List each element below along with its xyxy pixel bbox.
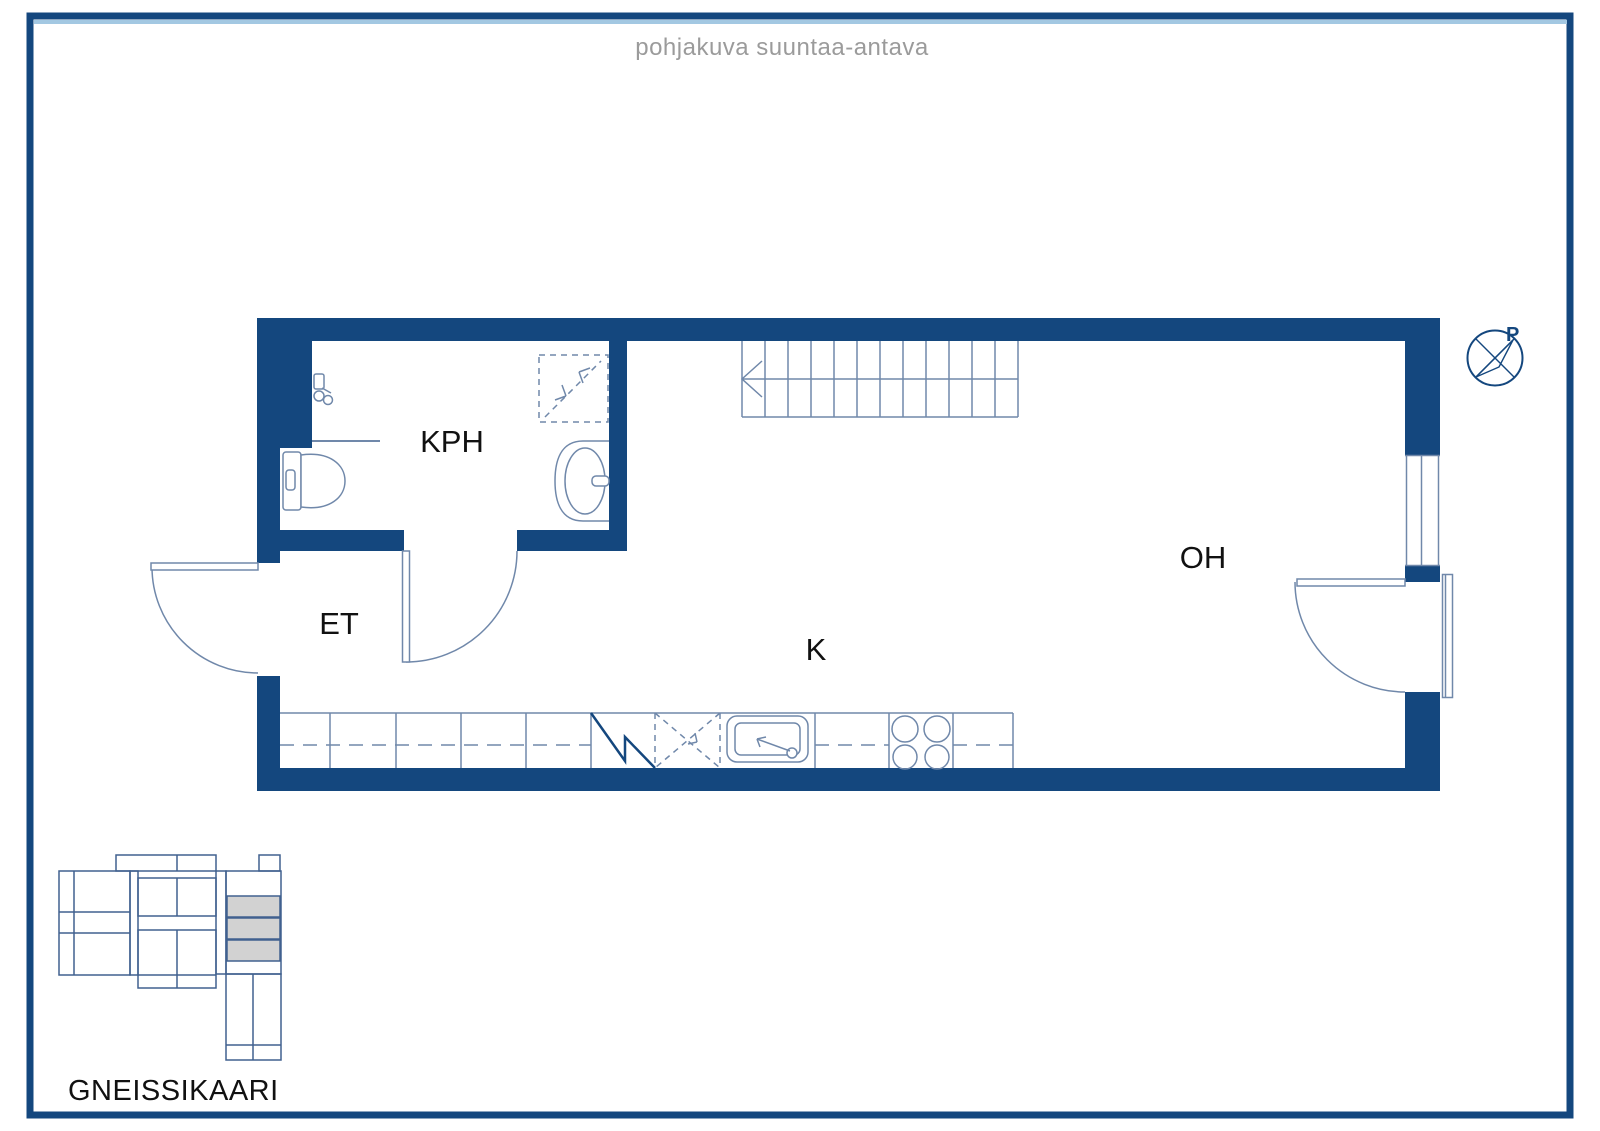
entrance-door-swing xyxy=(152,567,258,673)
tap-icon xyxy=(314,374,333,405)
wall-bathroom-bottom-right xyxy=(517,530,627,551)
wall-left-lower xyxy=(257,676,280,791)
dishwasher xyxy=(655,713,720,768)
toilet xyxy=(283,452,345,510)
wall-right-upper xyxy=(1405,318,1440,455)
sink-tap xyxy=(787,748,797,758)
north-label: P xyxy=(1506,324,1519,346)
room-label-kph: KPH xyxy=(420,424,484,459)
bathroom-sink xyxy=(555,441,609,521)
terrace-door-leaf xyxy=(1297,579,1405,586)
terrace-door-threshold xyxy=(1443,575,1453,698)
page-title: pohjakuva suuntaa-antava xyxy=(635,34,929,61)
wall-bathroom-left-block xyxy=(257,318,312,448)
entrance-door xyxy=(151,563,258,673)
wall-top xyxy=(257,318,1440,341)
shower-area xyxy=(539,355,608,422)
wall-bathroom-right xyxy=(609,341,627,551)
site-highlight-unit xyxy=(227,896,280,917)
interior-door-leaf xyxy=(403,551,410,662)
room-label-oh: OH xyxy=(1180,540,1227,575)
stove xyxy=(892,716,950,769)
staircase xyxy=(742,341,1018,417)
kitchen-counter xyxy=(280,713,1013,769)
terrace-door xyxy=(1295,575,1453,698)
site-plan xyxy=(59,855,281,1060)
site-highlight-unit xyxy=(227,940,280,961)
site-name: GNEISSIKAARI xyxy=(68,1075,279,1107)
interior-door xyxy=(403,551,518,662)
room-label-k: K xyxy=(806,632,827,667)
room-label-et: ET xyxy=(319,606,359,641)
wall-right-lower xyxy=(1405,692,1440,791)
plan-walls xyxy=(257,318,1440,791)
site-highlight-unit xyxy=(227,918,280,939)
north-arrow: P xyxy=(1468,324,1523,386)
floorplan-canvas: pohjakuva suuntaa-antava xyxy=(0,0,1600,1131)
entrance-door-leaf xyxy=(151,563,258,570)
wall-bathroom-bottom-left xyxy=(257,530,404,551)
wall-bottom xyxy=(257,768,1440,791)
sink-faucet xyxy=(592,476,609,486)
floorplan-page: pohjakuva suuntaa-antava xyxy=(0,0,1600,1131)
kitchen-sink xyxy=(727,716,808,762)
wall-right-stub xyxy=(1405,566,1440,582)
terrace-door-swing xyxy=(1295,582,1405,692)
interior-door-swing xyxy=(406,551,517,662)
border-accent-line xyxy=(34,20,1567,24)
refrigerator xyxy=(591,713,655,768)
shower xyxy=(539,355,608,422)
window xyxy=(1405,455,1440,566)
